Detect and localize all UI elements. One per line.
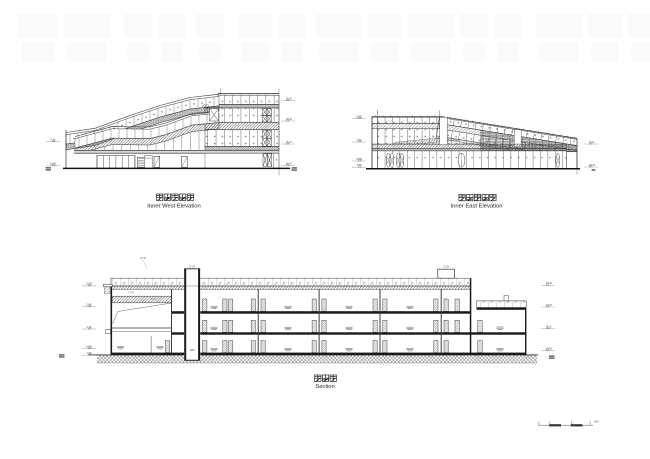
svg-text:12.88: 12.88 <box>189 267 195 269</box>
svg-text:±0.00: ±0.00 <box>356 158 363 161</box>
svg-text:10.20: 10.20 <box>86 304 93 307</box>
svg-text:10.20: 10.20 <box>151 299 157 301</box>
svg-text:12.88: 12.88 <box>443 266 449 268</box>
svg-text:5.10: 5.10 <box>87 326 92 329</box>
svg-text:-0.45: -0.45 <box>86 352 92 355</box>
svg-text:Section: Section <box>315 384 334 390</box>
svg-text:10M: 10M <box>594 420 599 424</box>
svg-text:±0.00: ±0.00 <box>50 162 57 165</box>
svg-text:15.30: 15.30 <box>140 258 146 260</box>
svg-text:±0.00: ±0.00 <box>86 345 93 348</box>
svg-text:-0.45: -0.45 <box>356 164 362 167</box>
svg-text:5.10: 5.10 <box>51 138 56 141</box>
svg-text:10.20: 10.20 <box>356 115 363 118</box>
svg-text:15.30: 15.30 <box>86 283 93 286</box>
svg-text:Inner West Elevation: Inner West Elevation <box>147 204 200 210</box>
svg-text:Inner East Elevation: Inner East Elevation <box>451 204 503 210</box>
svg-text:15.30: 15.30 <box>128 292 134 294</box>
svg-text:5.10: 5.10 <box>357 139 362 142</box>
